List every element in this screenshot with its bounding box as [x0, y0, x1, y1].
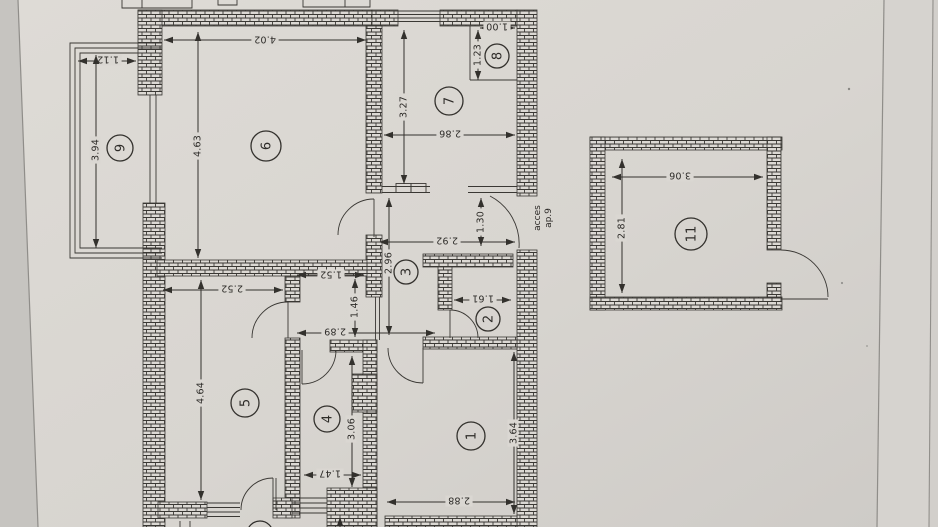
room-number: 7	[443, 97, 458, 105]
dust-speck	[866, 345, 868, 347]
room-number: 1	[465, 432, 480, 440]
dimension-label: 1.12	[97, 54, 119, 65]
room-number: 9	[114, 144, 129, 152]
dimension-label: 2.92	[436, 235, 458, 246]
dimension-label: 4.02	[254, 34, 276, 45]
wall	[285, 276, 300, 302]
access-label-line1: acces	[533, 205, 543, 231]
dimension-label: 2.96	[384, 252, 395, 274]
room-number: 2	[482, 315, 497, 323]
dust-speck	[848, 88, 850, 90]
wall	[158, 502, 207, 518]
wall	[285, 338, 300, 518]
wall	[767, 137, 781, 250]
room-number: 11	[685, 226, 700, 243]
dimension-label: 2.88	[448, 495, 470, 506]
floor-plan-svg: 4.021.122.861.002.921.612.521.522.891.47…	[0, 0, 938, 527]
dimension-label: 2.52	[221, 283, 243, 294]
access-label-line2: ap.9	[544, 208, 554, 228]
wall	[590, 137, 782, 150]
dimension-label: 4.63	[193, 135, 204, 157]
dimension-label: 1.52	[320, 269, 342, 280]
floor-plan-photo: 4.021.122.861.002.921.612.521.522.891.47…	[0, 0, 938, 527]
wall	[517, 250, 537, 527]
dimension-label: 1.46	[350, 296, 361, 318]
wall	[372, 10, 398, 26]
paper-right-band	[877, 0, 933, 527]
wall	[767, 283, 781, 297]
dimension-label: 2.89	[324, 326, 346, 337]
wall	[590, 297, 782, 310]
wall	[590, 137, 605, 310]
dimension-label: 3.94	[91, 139, 102, 161]
dimension-label: 1.23	[473, 44, 484, 66]
room-number: 3	[400, 268, 415, 276]
wall	[517, 10, 537, 196]
wall	[423, 337, 517, 349]
access-label: acces ap.9	[533, 205, 554, 231]
wall	[138, 10, 162, 95]
wall	[143, 203, 165, 527]
dimension-label: 4.64	[196, 382, 207, 404]
dimension-label: 1.61	[472, 293, 494, 304]
room-number: 6	[260, 142, 275, 150]
wall	[385, 516, 517, 527]
wall	[366, 26, 382, 193]
wall	[138, 10, 372, 26]
wall	[366, 235, 382, 297]
dimension-label: 3.06	[347, 418, 358, 440]
dimension-label: 1.47	[319, 468, 341, 479]
dimension: 1.00	[480, 21, 515, 33]
dust-speck	[841, 282, 843, 284]
dimension-label: 3.64	[509, 422, 520, 444]
dimension-label: 1.30	[476, 211, 487, 233]
dimension-label: 3.27	[399, 96, 410, 118]
dimension-label: 2.81	[617, 217, 628, 239]
room-number: 4	[321, 415, 336, 423]
room-number: 5	[239, 399, 254, 407]
wall	[327, 488, 377, 527]
dimension-label: 3.06	[669, 170, 691, 181]
room-number: 8	[491, 52, 506, 60]
wall	[438, 266, 452, 310]
wall	[352, 374, 377, 412]
dimension-label: 2.86	[439, 128, 461, 139]
dimension-label: 1.00	[486, 21, 508, 32]
wall	[423, 254, 513, 267]
